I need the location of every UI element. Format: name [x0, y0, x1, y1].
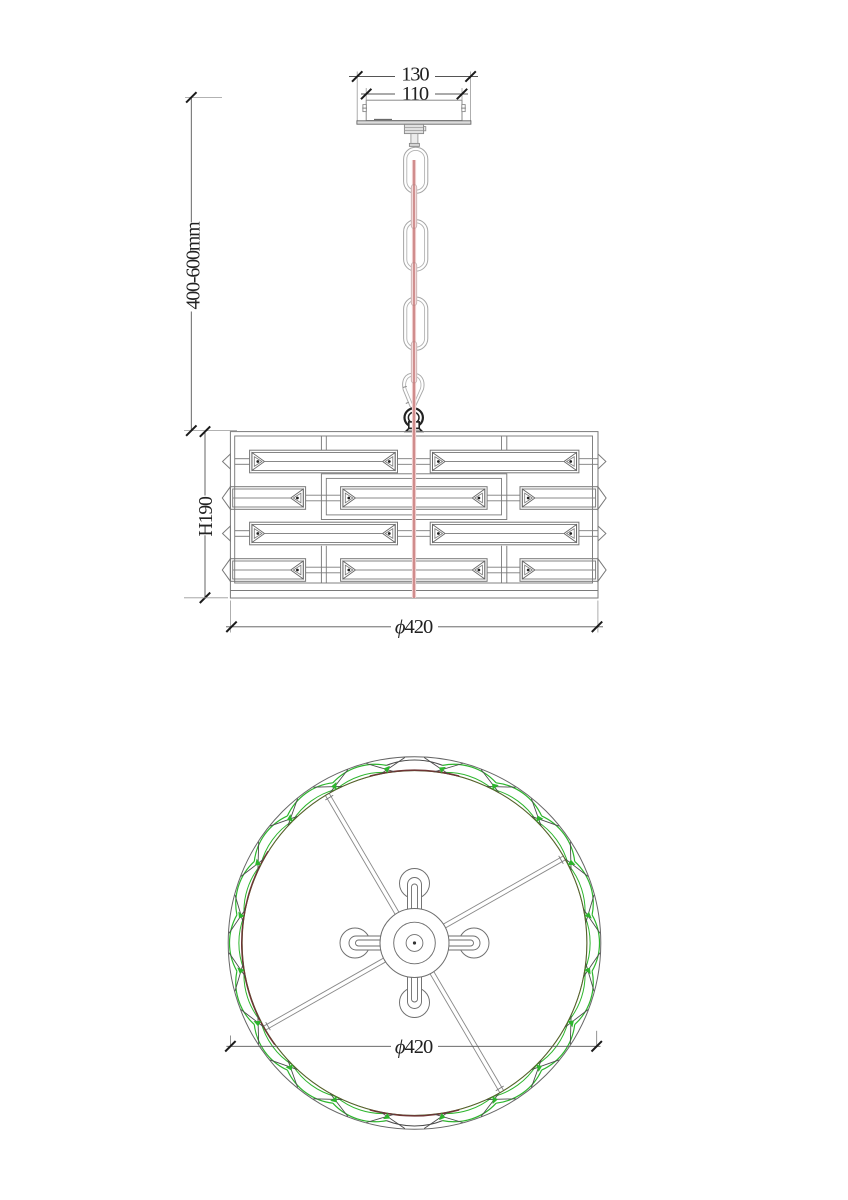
svg-text:H190: H190: [196, 497, 217, 537]
svg-text:ϕ420: ϕ420: [395, 1036, 433, 1058]
svg-text:400-600mm: 400-600mm: [182, 221, 204, 310]
svg-text:ϕ420: ϕ420: [395, 616, 433, 638]
